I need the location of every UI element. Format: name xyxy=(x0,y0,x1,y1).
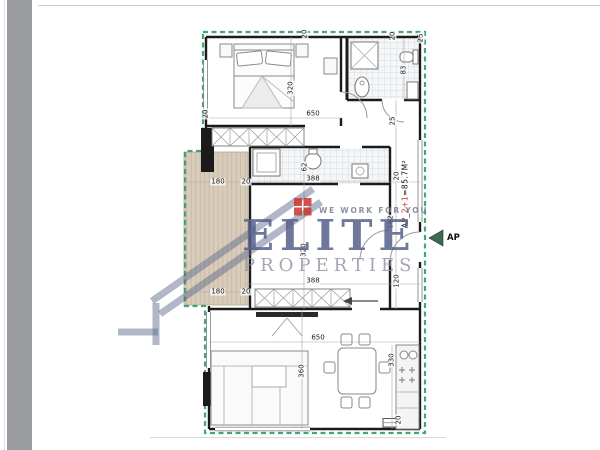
faucet xyxy=(309,149,317,154)
living-fixtures xyxy=(211,312,419,429)
dimension-label: 180 xyxy=(210,289,225,296)
side-table xyxy=(324,58,337,74)
dimension-label: 62 xyxy=(302,162,309,173)
pillow xyxy=(236,51,262,67)
bath-cabinet xyxy=(407,82,418,99)
dimension-label: 20 xyxy=(394,171,401,182)
dimension-label: 20 xyxy=(396,415,403,426)
sink xyxy=(355,77,369,97)
sofa xyxy=(211,351,308,425)
nightstand xyxy=(296,44,308,57)
entry-label: AP xyxy=(447,233,460,243)
wardrobe-row-middle xyxy=(255,289,350,307)
toilet xyxy=(400,52,413,62)
dimension-label: 330 xyxy=(389,352,396,367)
dimension-label: 20 xyxy=(241,179,252,186)
kitchen-sink xyxy=(400,351,408,359)
pillow xyxy=(265,51,291,67)
shower-tray xyxy=(257,153,276,172)
dimension-label: 20 xyxy=(241,289,252,296)
dining-table xyxy=(338,348,376,394)
dimension-label: 20 xyxy=(390,31,397,42)
dimension-label: 388 xyxy=(305,176,320,183)
coffee-table xyxy=(252,366,286,387)
dimension-label: 388 xyxy=(305,278,320,285)
dimension-label: 650 xyxy=(305,111,320,118)
area-label-size: =85.7M² xyxy=(401,160,410,196)
tv-unit xyxy=(256,312,318,317)
dimension-label: 25 xyxy=(390,116,397,127)
watermark-subbrand: PROPERTIES xyxy=(243,257,417,275)
dimension-label: 320 xyxy=(288,80,295,95)
toilet-tank xyxy=(413,50,418,64)
wardrobe-row-top xyxy=(212,128,304,146)
apartment-entry-marker-icon xyxy=(429,230,443,246)
dimension-label: 20 xyxy=(203,109,210,120)
dimension-label: 180 xyxy=(210,179,225,186)
dimension-label: 20 xyxy=(302,29,309,40)
watermark-brand: ELITE xyxy=(242,215,416,257)
dimension-label: 360 xyxy=(299,363,306,378)
terrace-floor xyxy=(184,152,248,305)
dimension-label: 25 xyxy=(418,33,425,44)
nightstand xyxy=(220,44,232,57)
bedroom-furniture xyxy=(220,44,337,108)
dimension-label: 650 xyxy=(310,335,325,342)
dimension-label: 83 xyxy=(401,65,408,76)
floor-plan-page: 6503202020258325201802062388201823201802… xyxy=(0,0,600,450)
